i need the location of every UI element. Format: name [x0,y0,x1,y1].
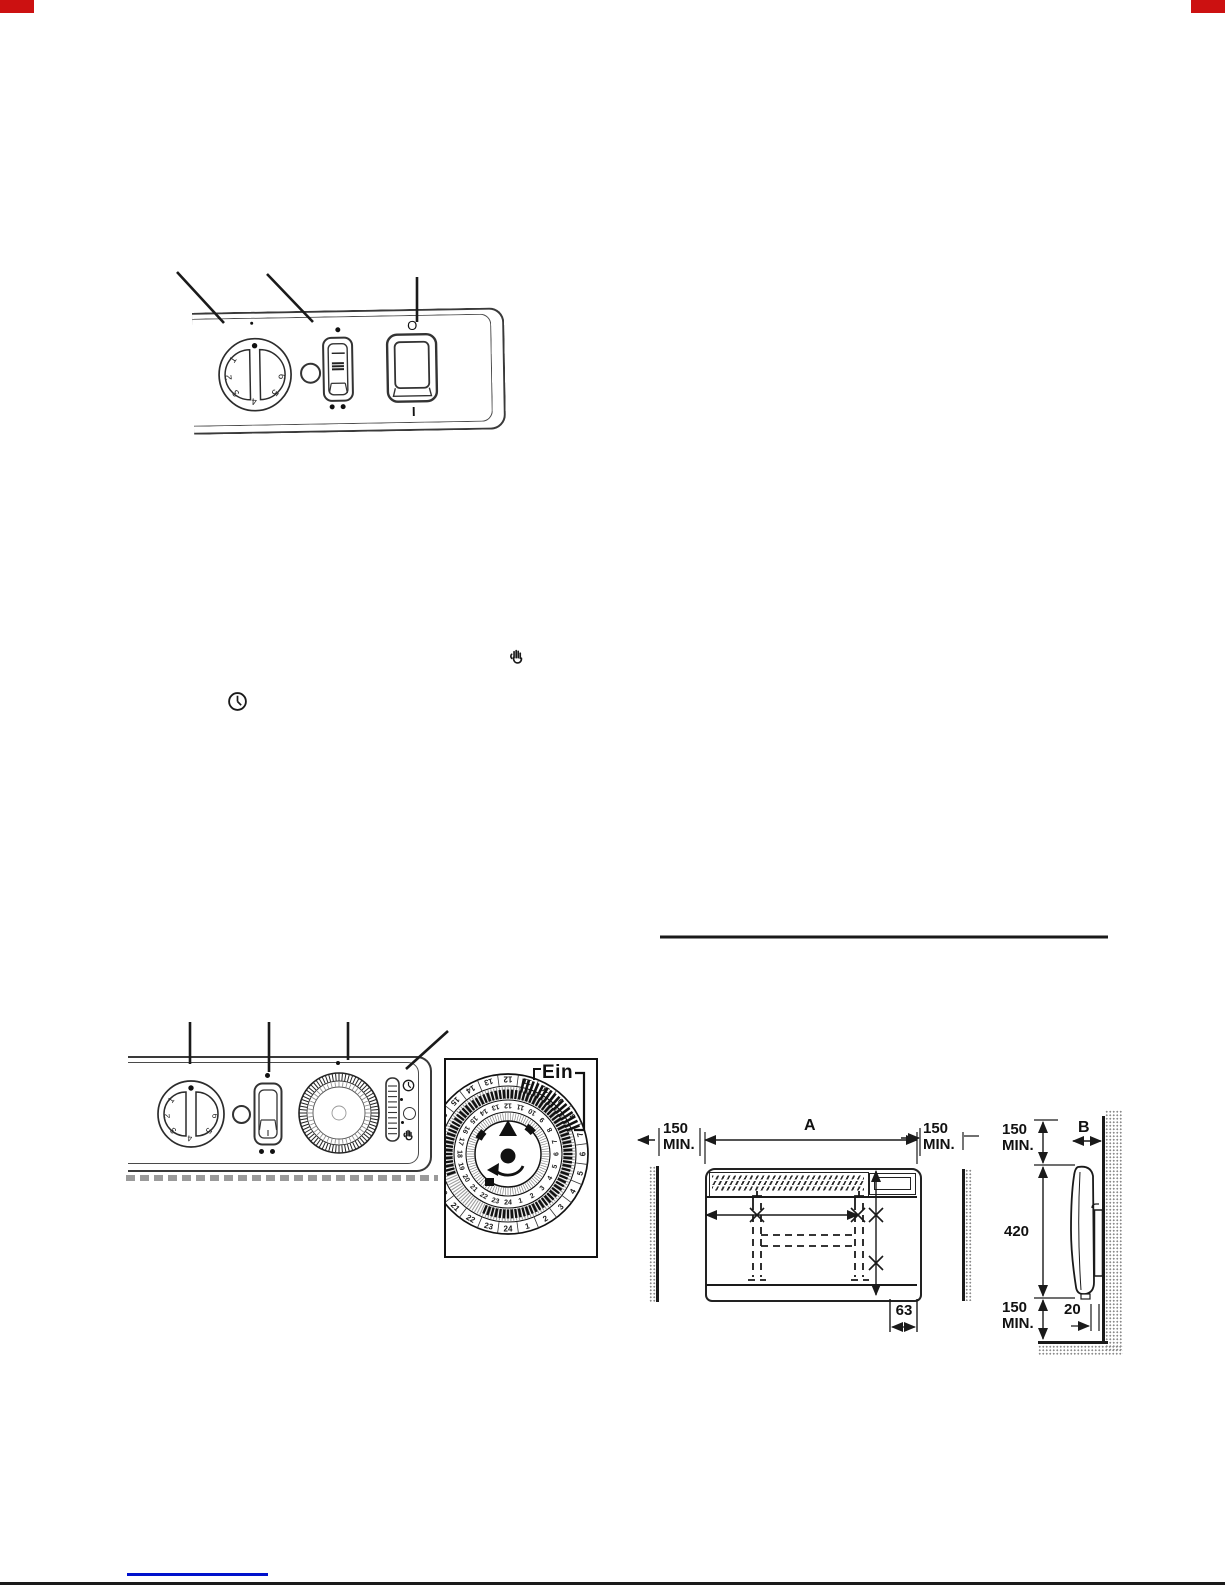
heater-fin-band [126,1175,438,1181]
side-top-clearance-label: 150 MIN. [1002,1122,1034,1154]
power-off-label: O [404,318,420,333]
timer-on-label: Ein [542,1062,573,1084]
indicator-lamp [232,1105,251,1124]
side-bottom-clearance-label: 150 MIN. [1002,1300,1034,1332]
timer-dial[interactable] [295,1069,383,1157]
corner-mark-left [0,0,34,13]
control-panel-top: 123456 O I [192,302,512,436]
svg-text:11: 11 [516,1102,525,1111]
slider-step-dot-1 [400,1098,403,1101]
svg-text:23: 23 [491,1197,500,1206]
svg-text:5: 5 [575,1170,585,1177]
floor-stipple [1038,1345,1123,1356]
rocker-top-dot [265,1073,270,1078]
svg-text:4: 4 [187,1133,193,1143]
rocker-bottom-dot-2 [270,1149,275,1154]
svg-text:13: 13 [491,1102,500,1111]
program-slider[interactable] [385,1077,401,1143]
hand-icon [402,1128,416,1142]
side-wall-stipple [1105,1110,1123,1350]
heater-bottom-line [706,1284,917,1286]
mode-rocker-switch[interactable] [321,336,354,403]
svg-text:12: 12 [503,1075,512,1084]
footer-link-underline[interactable] [127,1573,268,1576]
manual-page: 123456 O I [0,0,1225,1585]
svg-text:6: 6 [553,1152,560,1156]
svg-text:3: 3 [539,1185,547,1193]
svg-text:7: 7 [575,1131,585,1138]
depth-b-label: B [1078,1119,1090,1137]
thermostat-dial[interactable]: 123456 [155,1078,227,1150]
corner-mark-right [1191,0,1225,13]
right-wall-stipple [965,1169,972,1301]
svg-text:17: 17 [456,1137,465,1146]
left-wall-line [656,1166,659,1302]
heater-control-box-inner [874,1177,911,1190]
hand-icon [508,647,527,666]
svg-text:1: 1 [518,1197,524,1205]
power-on-label: I [408,404,420,419]
floor-line [1038,1341,1108,1344]
svg-text:18: 18 [456,1150,463,1158]
svg-text:2: 2 [529,1192,536,1200]
timer-index-dot [336,1061,340,1065]
svg-text:6: 6 [210,1113,220,1119]
width-a-label: A [804,1117,816,1135]
left-wall-stipple [649,1166,656,1302]
svg-text:4: 4 [251,395,257,406]
clock-icon [402,1079,415,1092]
rocker-top-dot [335,327,340,332]
svg-text:1: 1 [524,1221,531,1231]
svg-text:8: 8 [546,1126,554,1133]
rocker-bottom-dot-2 [341,404,346,409]
svg-text:7: 7 [551,1138,559,1144]
clock-icon [227,691,248,712]
control-panel-timer: 123456 [128,1054,440,1184]
power-switch[interactable] [385,333,438,404]
height-label: 420 [1004,1224,1029,1240]
thermostat-dial[interactable]: 123456 [214,334,295,415]
svg-text:19: 19 [456,1162,465,1171]
panel-index-dot [250,322,253,325]
svg-text:4: 4 [546,1175,554,1182]
svg-text:5: 5 [551,1164,559,1170]
bottom-offset-label: 63 [892,1302,916,1319]
side-wall-line [1102,1116,1105,1344]
svg-text:6: 6 [578,1151,587,1156]
heater-grille [712,1175,864,1192]
mode-rocker-switch[interactable] [253,1082,283,1146]
timer-detail-dial: 1234567891011121314151617181920212223241… [446,1060,596,1256]
timer-detail-box: 1234567891011121314151617181920212223241… [444,1058,598,1258]
rocker-bottom-dot-1 [259,1149,264,1154]
svg-text:12: 12 [504,1102,512,1109]
front-left-clearance-label: 150 MIN. [663,1121,695,1153]
slider-step-dot-2 [401,1121,404,1124]
svg-text:24: 24 [504,1224,513,1233]
off-position-circle [403,1107,416,1120]
rocker-bottom-dot-1 [330,404,335,409]
heater-body-line [706,1196,917,1198]
front-right-clearance-label: 150 MIN. [923,1121,955,1153]
wall-gap-label: 20 [1064,1302,1081,1318]
svg-text:24: 24 [504,1199,512,1206]
svg-text:9: 9 [539,1115,547,1123]
svg-text:2: 2 [161,1113,171,1119]
